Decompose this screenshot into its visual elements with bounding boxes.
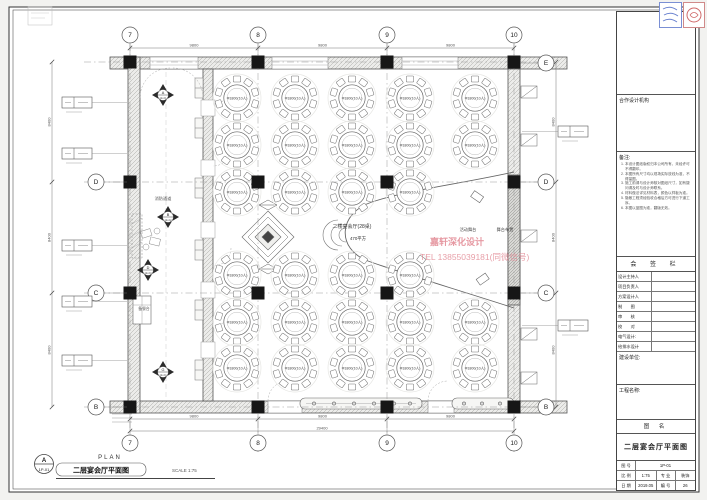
grid-bubble: E bbox=[538, 55, 554, 71]
chair bbox=[233, 76, 240, 82]
chair bbox=[348, 76, 355, 82]
grid-bubble: C bbox=[538, 285, 554, 301]
chair bbox=[291, 338, 298, 344]
chair bbox=[233, 161, 240, 167]
sign-rows: 设计主持人项目负责人方案设计人制 图审 核校 对电气设计:给排水设计 bbox=[617, 272, 695, 352]
chair bbox=[233, 208, 240, 214]
table-label: Φ1800(10人) bbox=[285, 365, 306, 370]
dimension-value: 9800 bbox=[190, 414, 200, 419]
grid-bubble: D bbox=[538, 174, 554, 190]
chair bbox=[291, 123, 298, 129]
notes-box: 备注: 本设计图纸版权归本公司所有，未经许可不得翻印。本图所有尺寸均以现场实际放… bbox=[617, 152, 695, 257]
chair bbox=[406, 346, 413, 352]
dimension-value: 29400 bbox=[316, 426, 328, 431]
chair bbox=[348, 291, 355, 297]
chair bbox=[348, 253, 355, 259]
table-label: Φ1800(10人) bbox=[227, 319, 248, 324]
view-marker-code: 1E-03 bbox=[145, 271, 152, 275]
serial-label: 编 号 bbox=[657, 481, 676, 490]
table-label: Φ1800(10人) bbox=[227, 365, 248, 370]
table-label: Φ1800(10人) bbox=[400, 95, 421, 100]
owner-box: 建设单位: bbox=[617, 352, 695, 385]
chair bbox=[233, 114, 240, 120]
chair bbox=[291, 346, 298, 352]
structural-column bbox=[381, 56, 394, 69]
view-marker-code: 1E-04 bbox=[160, 373, 167, 377]
note-item: 本图以蓝图为准，翻版无效。 bbox=[625, 206, 693, 211]
serial-value: 26 bbox=[676, 481, 696, 490]
note-item: 隐蔽工程须经验收合格后方可进行下道工序。 bbox=[625, 196, 693, 206]
table-label: Φ1800(10人) bbox=[227, 189, 248, 194]
chair bbox=[233, 123, 240, 129]
sign-row: 校 对 bbox=[617, 322, 695, 332]
grid-bubble: 10 bbox=[506, 27, 522, 43]
table-label: Φ1800(10人) bbox=[342, 189, 363, 194]
view-marker-letter: B bbox=[167, 213, 170, 217]
grid-bubble: B bbox=[538, 399, 554, 415]
grid-bubble-label: 10 bbox=[510, 440, 518, 447]
chair bbox=[348, 338, 355, 344]
chair bbox=[471, 76, 478, 82]
figno-value: 1P-01 bbox=[636, 461, 695, 470]
approval-stamp-red bbox=[683, 2, 706, 28]
chair bbox=[471, 300, 478, 306]
chair bbox=[291, 114, 298, 120]
owner-label: 建设单位: bbox=[619, 355, 640, 361]
dimension-value: 9800 bbox=[190, 43, 200, 48]
chair bbox=[471, 123, 478, 129]
grid-bubble-label: B bbox=[94, 404, 98, 411]
chair bbox=[291, 291, 298, 297]
structural-column bbox=[381, 287, 394, 300]
project-label: 工程名称: bbox=[619, 388, 640, 394]
approval-stamp-blue bbox=[659, 2, 682, 28]
table-label: Φ1800(10人) bbox=[465, 365, 486, 370]
chair bbox=[291, 300, 298, 306]
grid-bubble: 7 bbox=[122, 27, 138, 43]
hall-area-label: 470平方 bbox=[350, 235, 367, 242]
view-marker-letter: A bbox=[162, 91, 165, 95]
chair bbox=[233, 291, 240, 297]
sign-row: 电气设计: bbox=[617, 332, 695, 342]
view-marker-letter: D bbox=[147, 266, 150, 270]
stage-label-2: 舞台布置 bbox=[497, 226, 514, 233]
plan-word: PLAN bbox=[98, 455, 122, 461]
dimension-value: 9800 bbox=[446, 414, 456, 419]
grid-bubble: 9 bbox=[379, 27, 395, 43]
table-label: Φ1800(10人) bbox=[465, 319, 486, 324]
date-label: 日 期 bbox=[617, 481, 636, 490]
stage-label: 活动舞台 bbox=[460, 226, 477, 233]
chair bbox=[348, 300, 355, 306]
dimension-value: 8400 bbox=[47, 232, 52, 242]
table-label: Φ1800(10人) bbox=[285, 142, 306, 147]
chair bbox=[233, 384, 240, 390]
chair bbox=[406, 123, 413, 129]
note-item: 施工前请与设计师核对图纸尺寸，如有疑问请及时与设计师联系。 bbox=[625, 181, 693, 191]
chair bbox=[233, 338, 240, 344]
table-label: Φ1800(10人) bbox=[400, 319, 421, 324]
structural-column bbox=[252, 287, 265, 300]
chair bbox=[406, 338, 413, 344]
structural-column bbox=[508, 56, 521, 69]
chair bbox=[348, 123, 355, 129]
sign-title: 会 签 栏 bbox=[617, 257, 695, 272]
title-block: 合作设计机构 备注: 本设计图纸版权归本公司所有，未经许可不得翻印。本图所有尺寸… bbox=[616, 11, 696, 491]
structural-column bbox=[508, 287, 521, 300]
chair bbox=[406, 170, 413, 176]
chair bbox=[291, 76, 298, 82]
grid-bubble-label: D bbox=[94, 179, 99, 186]
table-label: Φ1800(10人) bbox=[400, 142, 421, 147]
chair bbox=[406, 384, 413, 390]
table-label: Φ1800(10人) bbox=[342, 365, 363, 370]
chair bbox=[406, 208, 413, 214]
sign-row: 审 核 bbox=[617, 312, 695, 322]
table-label: Φ1800(10人) bbox=[285, 189, 306, 194]
floor-plan-canvas: Φ1800(10人)Φ1800(10人)Φ1800(10人)Φ1800(10人)… bbox=[0, 0, 707, 500]
table-label: Φ1800(10人) bbox=[400, 189, 421, 194]
chair bbox=[471, 338, 478, 344]
sign-row: 设计主持人 bbox=[617, 272, 695, 282]
ref-code: 1P-01 bbox=[39, 467, 50, 472]
chair bbox=[291, 208, 298, 214]
project-box: 工程名称: bbox=[617, 385, 695, 420]
dimension-value: 9800 bbox=[318, 43, 328, 48]
sign-row: 项目负责人 bbox=[617, 282, 695, 292]
table-label: Φ1800(10人) bbox=[342, 272, 363, 277]
title-block-footer: 图 号 1P-01 比 例 1:75 专 业 装饰 日 期 2019.05 编 … bbox=[617, 461, 695, 490]
table-label: Φ1800(10人) bbox=[465, 95, 486, 100]
chair bbox=[233, 346, 240, 352]
table-label: Φ1800(10人) bbox=[400, 272, 421, 277]
view-marker-code: 1E-02 bbox=[165, 218, 172, 222]
service-counter-label: 备餐台 bbox=[138, 306, 150, 311]
dimension-value: 8400 bbox=[47, 117, 52, 127]
table-label: Φ1800(10人) bbox=[400, 365, 421, 370]
grid-bubble: 8 bbox=[250, 435, 266, 451]
dimension-value: 9800 bbox=[318, 414, 328, 419]
structural-column bbox=[381, 176, 394, 189]
dimension-value: 9800 bbox=[446, 43, 456, 48]
chair bbox=[348, 170, 355, 176]
table-label: Φ1800(10人) bbox=[285, 95, 306, 100]
chair bbox=[406, 161, 413, 167]
chair bbox=[471, 114, 478, 120]
chair bbox=[348, 346, 355, 352]
top-windows bbox=[150, 57, 458, 69]
chair bbox=[348, 161, 355, 167]
dimension-value: 8400 bbox=[551, 345, 556, 355]
grid-bubble-label: 10 bbox=[510, 32, 518, 39]
chair bbox=[471, 384, 478, 390]
table-label: Φ1800(10人) bbox=[285, 272, 306, 277]
buffet-counters bbox=[300, 398, 514, 409]
note-item: 本设计图纸版权归本公司所有，未经许可不得翻印。 bbox=[625, 162, 693, 172]
chair bbox=[233, 170, 240, 176]
hall-label: 二楼宴会厅(28桌) bbox=[333, 223, 372, 230]
table-label: Φ1800(10人) bbox=[227, 142, 248, 147]
dimension-value: 8400 bbox=[551, 117, 556, 127]
sign-row: 方案设计人 bbox=[617, 292, 695, 302]
chair bbox=[291, 161, 298, 167]
chair bbox=[348, 384, 355, 390]
chair bbox=[291, 253, 298, 259]
chair bbox=[291, 170, 298, 176]
chair bbox=[471, 346, 478, 352]
chair bbox=[348, 114, 355, 120]
major-label: 专 业 bbox=[657, 471, 676, 480]
grid-bubble-label: 9 bbox=[385, 440, 389, 447]
grid-bubble: D bbox=[88, 174, 104, 190]
sign-row: 制 图 bbox=[617, 302, 695, 312]
notes-title: 备注: bbox=[619, 154, 693, 161]
grid-bubble-label: C bbox=[94, 290, 99, 297]
chair bbox=[233, 300, 240, 306]
partner-box: 合作设计机构 bbox=[617, 95, 695, 152]
figno-label: 图 号 bbox=[617, 461, 636, 470]
chair bbox=[406, 76, 413, 82]
grid-bubble-label: E bbox=[544, 60, 549, 67]
partner-label: 合作设计机构 bbox=[619, 97, 693, 104]
approval-stamps bbox=[659, 2, 705, 28]
chair bbox=[406, 114, 413, 120]
fire-lane-label: 消防通道 bbox=[155, 195, 173, 202]
table-label: Φ1800(10人) bbox=[227, 95, 248, 100]
sign-row: 给排水设计 bbox=[617, 342, 695, 352]
structural-column bbox=[252, 56, 265, 69]
date-value: 2019.05 bbox=[636, 481, 657, 490]
table-label: Φ1800(10人) bbox=[285, 319, 306, 324]
chair bbox=[233, 253, 240, 259]
view-marker-code: 1E-01 bbox=[160, 96, 167, 100]
structural-column bbox=[381, 401, 394, 414]
grid-bubble: B bbox=[88, 399, 104, 415]
scale-label: 比 例 bbox=[617, 471, 636, 480]
figure-name: 二层宴会厅平面图 bbox=[617, 434, 695, 461]
watermark-line1: 嘉轩深化设计 bbox=[429, 236, 484, 247]
structural-column bbox=[124, 56, 137, 69]
grid-bubble: 8 bbox=[250, 27, 266, 43]
grid-bubble-label: 9 bbox=[385, 32, 389, 39]
chair bbox=[291, 384, 298, 390]
grid-bubble: 10 bbox=[506, 435, 522, 451]
structural-column bbox=[508, 176, 521, 189]
watermark-line2: TEL 13855039181(同微信号) bbox=[420, 252, 529, 262]
structural-column bbox=[252, 176, 265, 189]
table-label: Φ1800(10人) bbox=[227, 272, 248, 277]
structural-column bbox=[508, 401, 521, 414]
figure-label: 图 名 bbox=[617, 420, 695, 434]
view-marker-letter: G bbox=[162, 368, 165, 372]
major-value: 装饰 bbox=[676, 471, 696, 480]
grid-bubble-label: 8 bbox=[256, 32, 260, 39]
grid-bubble: 7 bbox=[122, 435, 138, 451]
grid-bubble-label: C bbox=[544, 290, 549, 297]
notes-list: 本设计图纸版权归本公司所有，未经许可不得翻印。本图所有尺寸均以现场实际放线为准，… bbox=[625, 162, 693, 210]
chair bbox=[406, 300, 413, 306]
structural-column bbox=[252, 401, 265, 414]
note-item: 本图所有尺寸均以现场实际放线为准，不得量图。 bbox=[625, 172, 693, 182]
chair bbox=[406, 253, 413, 259]
grid-bubble: 9 bbox=[379, 435, 395, 451]
chair bbox=[406, 291, 413, 297]
grid-bubble-label: 7 bbox=[128, 32, 132, 39]
chair bbox=[471, 161, 478, 167]
ref-letter: A bbox=[42, 458, 47, 464]
grid-bubble-label: D bbox=[544, 179, 549, 186]
table-label: Φ1800(10人) bbox=[342, 319, 363, 324]
table-label: Φ1800(10人) bbox=[342, 142, 363, 147]
table-label: Φ1800(10人) bbox=[342, 95, 363, 100]
grid-bubble-label: B bbox=[544, 404, 548, 411]
drawing-title: 二层宴会厅平面图 bbox=[73, 466, 129, 475]
table-label: Φ1800(10人) bbox=[465, 142, 486, 147]
grid-bubble-label: 7 bbox=[128, 440, 132, 447]
dimension-value: 8400 bbox=[551, 232, 556, 242]
dimension-value: 8400 bbox=[47, 345, 52, 355]
scale-note: SCALE 1:75 bbox=[172, 468, 197, 473]
chair bbox=[348, 208, 355, 214]
scale-value: 1:75 bbox=[636, 471, 657, 480]
grid-bubble-label: 8 bbox=[256, 440, 260, 447]
